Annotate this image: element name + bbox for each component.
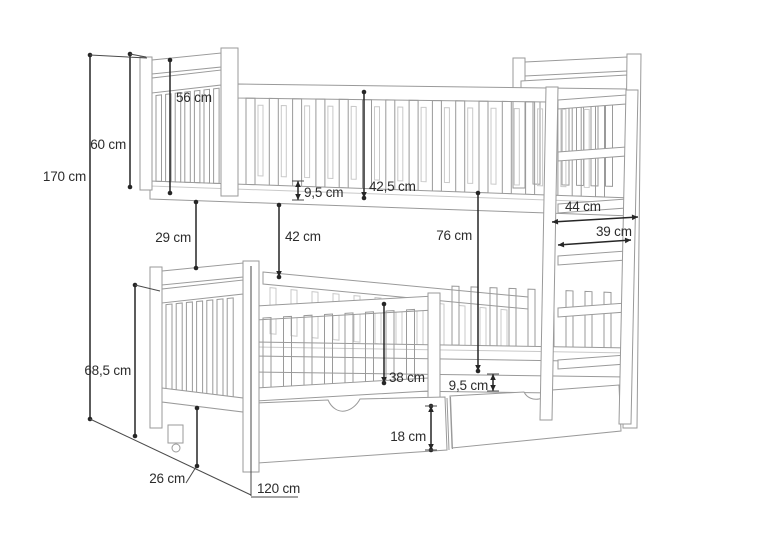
guard-top-to-frame-label: 42,5 cm <box>369 179 416 194</box>
upper-left-end-panel <box>140 48 238 196</box>
back-left-foot <box>168 425 183 443</box>
lower-guard-end-post <box>428 293 440 402</box>
upper-frame-thickness-label: 9,5 cm <box>304 185 343 200</box>
upper-back-left-post <box>140 57 152 190</box>
bed-width-label: 120 cm <box>257 481 300 496</box>
total-height-label: 170 cm <box>43 169 86 184</box>
left-end-gap-label: 29 cm <box>155 230 191 245</box>
floor-clearance-label: 26 cm <box>149 471 185 486</box>
guard-rail-height-label: 38 cm <box>389 370 425 385</box>
upper-front-left-post <box>221 48 238 196</box>
drawer-right <box>450 385 621 448</box>
frame-to-lower-rail-label: 42 cm <box>285 229 321 244</box>
caster-wheel <box>172 444 180 452</box>
upper-right-rail-1 <box>525 57 627 76</box>
upper-frame-to-mattress-label: 76 cm <box>436 228 472 243</box>
drawer-height-label: 18 cm <box>390 429 426 444</box>
upper-section-height-label: 60 cm <box>90 137 126 152</box>
ladder-outer-width-label: 44 cm <box>565 199 601 214</box>
bunk-bed-drawing: 170 cm 60 cm 56 cm 9,5 cm 42,5 cm 29 cm … <box>0 0 768 543</box>
bunk-bed-diagram: 170 cm 60 cm 56 cm 9,5 cm 42,5 cm 29 cm … <box>0 0 768 543</box>
upper-right-end-panel <box>513 57 627 188</box>
ladder-inner-width-label: 39 cm <box>596 224 632 239</box>
lower-right-end-slats <box>452 286 611 348</box>
lower-frame-thickness-label: 9,5 cm <box>449 378 488 393</box>
headboard-height-label: 56 cm <box>176 90 212 105</box>
lower-section-height-label: 68,5 cm <box>84 363 131 378</box>
lower-back-left-post <box>150 267 162 428</box>
lower-left-end-slats <box>166 298 233 399</box>
